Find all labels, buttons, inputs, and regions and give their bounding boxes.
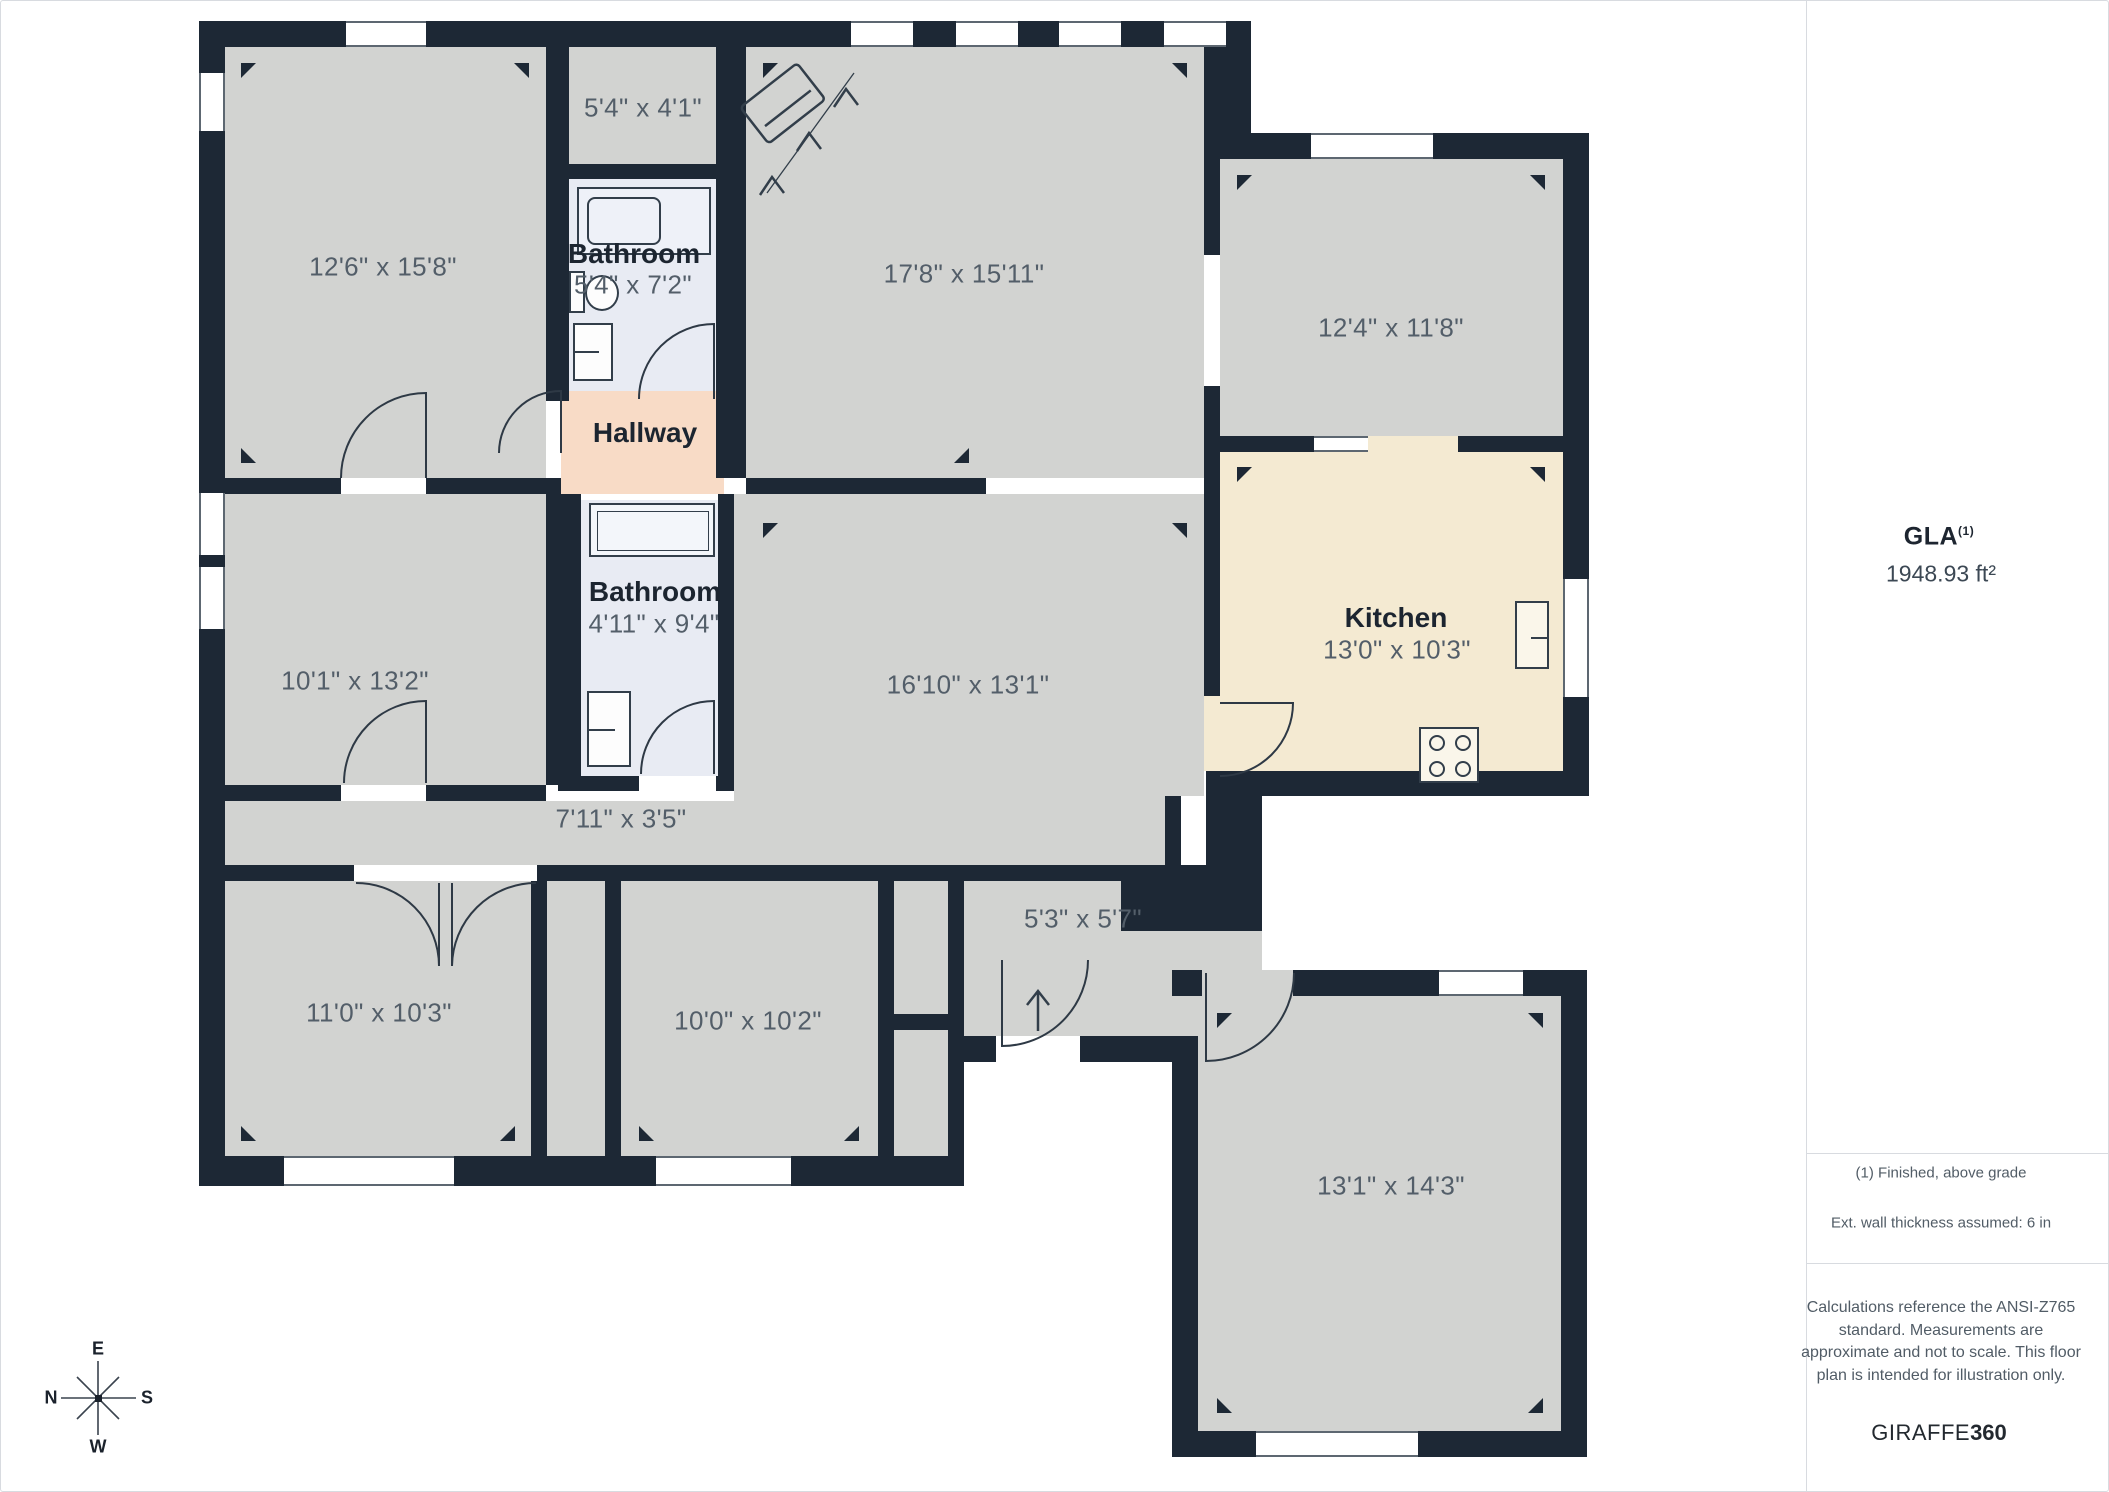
cabinet-line	[597, 511, 709, 551]
note-line: (1) Finished, above grade	[1856, 1165, 2027, 1182]
wall-segment	[1204, 159, 1220, 255]
giraffe360-logo: GIRAFFE360	[1871, 1420, 2007, 1446]
wall-segment	[716, 47, 746, 478]
room-dims-label: 5'4" x 4'1"	[584, 93, 702, 124]
window	[199, 567, 225, 629]
window	[956, 21, 1018, 47]
room-dims-label: 4'11" x 9'4"	[588, 609, 719, 640]
disclaimer-text: Calculations reference the ANSI-Z765 sta…	[1801, 1297, 2081, 1388]
panel-divider	[1806, 1263, 2109, 1264]
room-dims-label: 7'11" x 3'5"	[555, 804, 686, 835]
wall-segment	[537, 865, 734, 881]
room-dims-label: 5'4" x 7'2"	[574, 270, 692, 301]
gla-note-ref: (1)	[1958, 524, 1974, 538]
window	[851, 21, 913, 47]
counter-line	[1531, 637, 1549, 639]
window	[1563, 579, 1589, 697]
room-name-label: Bathroom	[568, 238, 700, 270]
room-kitchen-door-gap	[1204, 696, 1220, 771]
wall-segment	[1172, 970, 1202, 996]
compass-letter-bottom: W	[90, 1437, 107, 1458]
burner-icon	[1455, 735, 1471, 751]
front-door-opening	[996, 1036, 1080, 1062]
wall-segment	[1172, 1431, 1256, 1457]
room-closet-mid	[547, 881, 605, 1156]
wall-segment	[1080, 1036, 1172, 1062]
wall-segment	[894, 1014, 948, 1030]
compass-letter-left: N	[45, 1388, 58, 1409]
room-name-label: Kitchen	[1345, 602, 1448, 634]
wall-segment	[878, 865, 894, 1156]
room-closet-right-lower	[894, 1030, 948, 1156]
room-name-label: Bathroom	[589, 576, 721, 608]
window	[284, 1156, 454, 1186]
wall-segment	[426, 478, 561, 494]
window	[1164, 21, 1226, 47]
compass-letter-top: E	[92, 1339, 104, 1360]
window	[199, 73, 225, 131]
compass-letter-right: S	[141, 1388, 153, 1409]
wall-segment	[1206, 796, 1262, 865]
wall-segment	[948, 879, 964, 1186]
sink-line	[589, 729, 615, 731]
wall-segment	[1121, 865, 1262, 931]
burner-icon	[1455, 761, 1471, 777]
room-name-label: Hallway	[593, 417, 697, 449]
wall-segment	[426, 785, 546, 801]
stove-icon	[1419, 727, 1479, 783]
wall-segment	[546, 47, 569, 401]
wall-segment	[605, 881, 621, 1156]
wall-segment	[531, 881, 547, 1156]
room-dims-label: 10'1" x 13'2"	[281, 666, 429, 697]
wall-segment	[1204, 436, 1314, 452]
window	[1314, 436, 1368, 452]
wall-segment	[1172, 1036, 1198, 1457]
gla-label: GLA(1)	[1904, 523, 1974, 552]
floorplan-page: 12'6" x 15'8" 5'4" x 4'1" Bathroom 5'4" …	[0, 0, 2109, 1492]
room-dims-label: 12'6" x 15'8"	[309, 252, 457, 283]
room-bedroom-right	[1220, 159, 1563, 436]
counter-icon	[1515, 601, 1549, 669]
window	[346, 21, 426, 47]
room-dims-label: 12'4" x 11'8"	[1318, 313, 1464, 344]
brand-name: GIRAFFE	[1871, 1420, 1970, 1445]
burner-icon	[1429, 735, 1445, 751]
sink-icon	[573, 323, 613, 381]
wall-segment	[746, 478, 986, 494]
wall-segment	[546, 494, 558, 785]
wall-segment	[558, 776, 639, 791]
wall-segment	[716, 776, 734, 791]
wall-segment	[558, 494, 581, 791]
room-family	[734, 494, 1204, 796]
room-dims-label: 5'3" x 5'7"	[1024, 904, 1142, 935]
panel-divider	[1806, 1153, 2109, 1154]
room-dims-label: 17'8" x 15'11"	[884, 259, 1045, 290]
room-dims-label: 16'10" x 13'1"	[887, 670, 1050, 701]
brand-suffix: 360	[1970, 1420, 2007, 1445]
burner-icon	[1429, 761, 1445, 777]
room-dims-label: 11'0" x 10'3"	[306, 998, 452, 1029]
room-doorway-gap-3	[1198, 931, 1262, 970]
room-family-lower	[734, 796, 1165, 865]
wall-segment	[569, 164, 716, 179]
window	[1256, 1431, 1418, 1457]
wall-segment	[1206, 771, 1589, 796]
panel-border-left	[1806, 1, 1807, 1492]
wall-segment	[1418, 1431, 1587, 1457]
wall-segment	[1165, 796, 1181, 865]
wall-segment	[1561, 970, 1587, 1457]
room-bottom-right	[1198, 996, 1561, 1431]
compass-star	[61, 1361, 136, 1435]
wall-segment	[1458, 436, 1589, 452]
room-bedroom-mid-left	[225, 494, 546, 785]
window	[1311, 133, 1433, 159]
wall-segment	[1293, 970, 1439, 996]
wall-segment	[1204, 452, 1220, 696]
wall-segment	[718, 494, 734, 791]
gla-value: 1948.93 ft²	[1886, 561, 1996, 588]
window	[656, 1156, 791, 1186]
sink-icon	[587, 691, 631, 767]
wall-segment	[199, 865, 354, 881]
opening	[1368, 436, 1458, 452]
wall-segment	[199, 478, 341, 494]
room-closet-right	[894, 881, 948, 1014]
sink-line	[575, 351, 599, 353]
room-dims-label: 10'0" x 10'2"	[674, 1006, 822, 1037]
cabinet-icon	[589, 503, 715, 557]
room-dims-label: 13'0" x 10'3"	[1323, 635, 1471, 666]
wall-segment	[948, 1036, 996, 1062]
wall-segment	[199, 785, 341, 801]
window	[1059, 21, 1121, 47]
room-dims-label: 13'1" x 14'3"	[1317, 1171, 1465, 1202]
window	[1439, 970, 1523, 996]
wall-segment	[734, 865, 1121, 881]
room-doorway-gap-1	[1202, 970, 1293, 996]
note-line: Ext. wall thickness assumed: 6 in	[1831, 1215, 2051, 1232]
window	[199, 493, 225, 555]
